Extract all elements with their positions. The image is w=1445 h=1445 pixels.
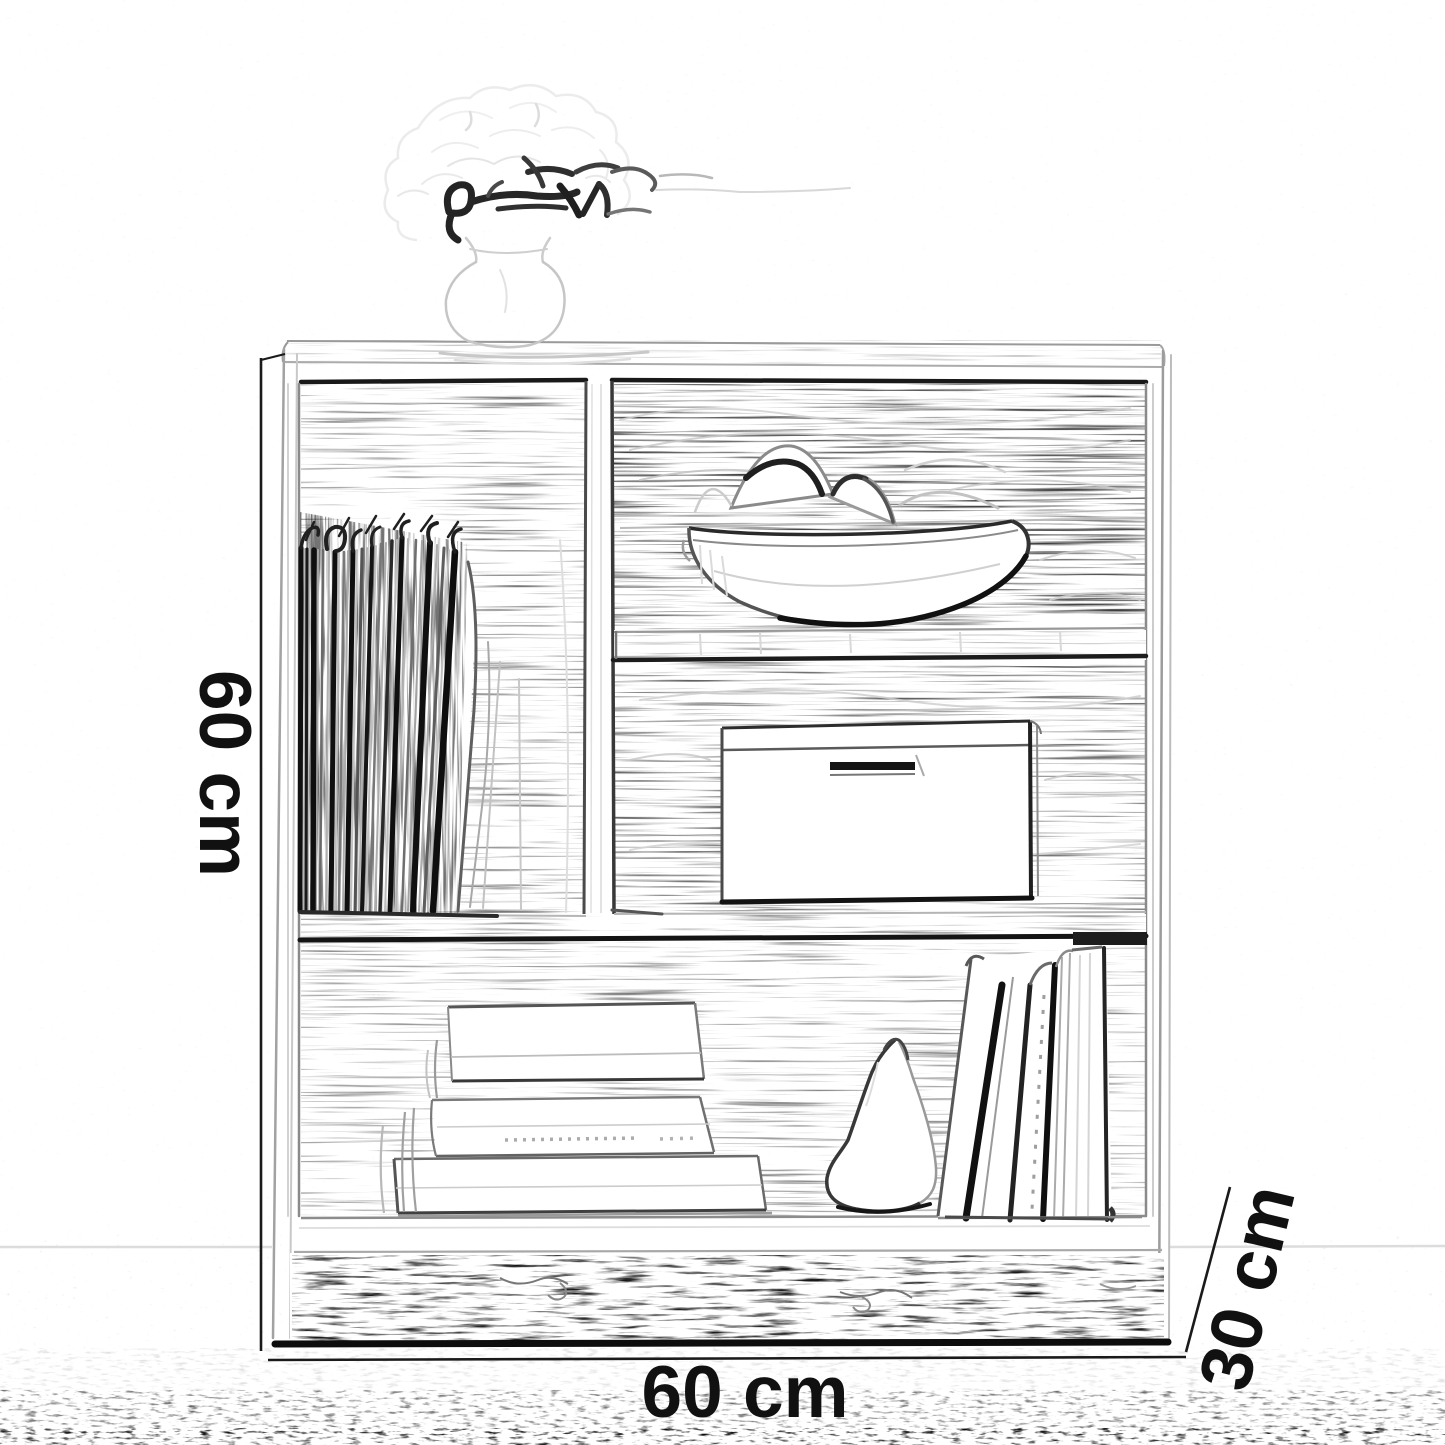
svg-text:60 cm: 60 cm [184, 670, 265, 877]
svg-text:60 cm: 60 cm [642, 1352, 849, 1433]
